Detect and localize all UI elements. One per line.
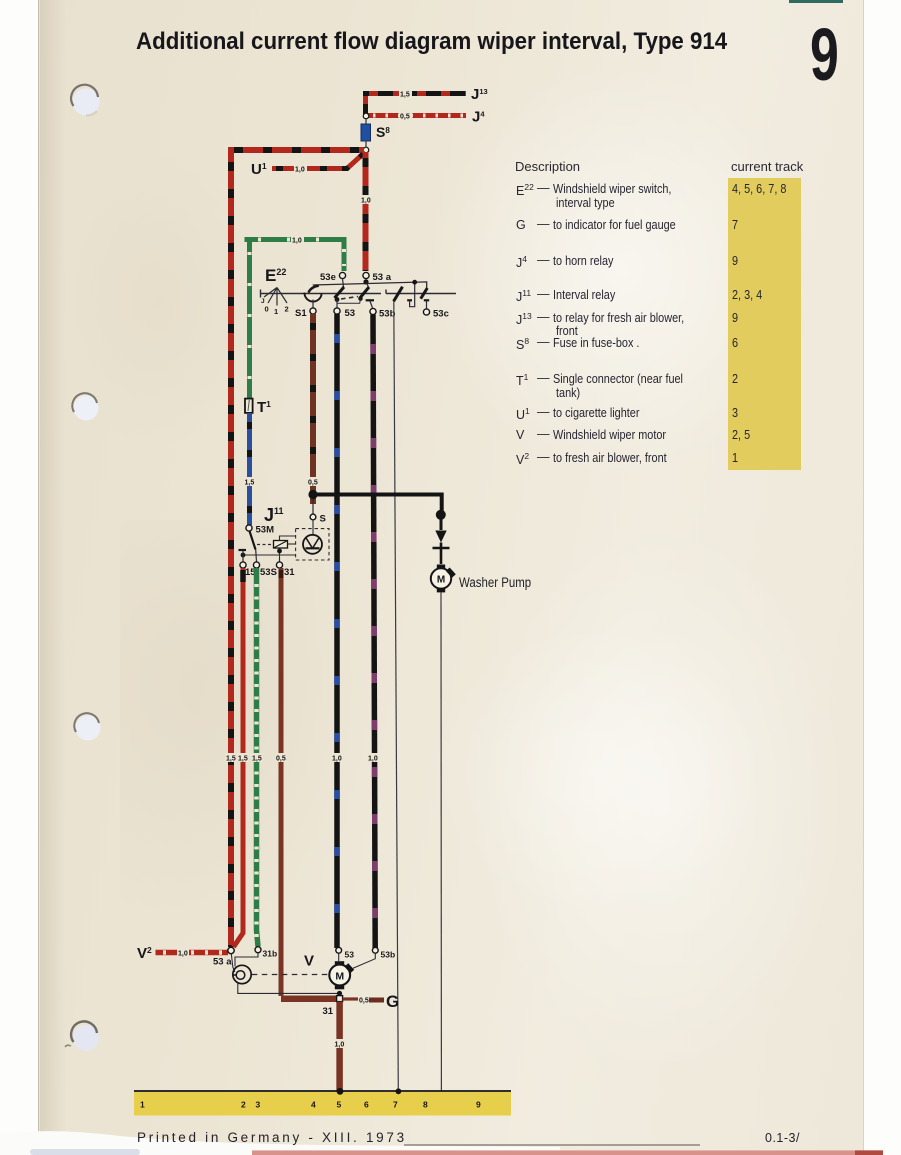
svg-text:1,5: 1,5 [245,480,255,487]
svg-text:53: 53 [345,950,355,960]
svg-text:1,5: 1,5 [252,756,262,763]
svg-text:1,0: 1,0 [178,951,188,958]
svg-text:1,0: 1,0 [292,238,302,245]
svg-text:53 a: 53 a [213,957,232,968]
svg-text:7: 7 [393,1100,398,1110]
svg-text:1: 1 [140,1100,145,1110]
svg-text:0: 0 [265,305,269,314]
svg-text:U1: U1 [251,161,267,178]
svg-text:53 a: 53 a [373,272,392,283]
svg-text:31b: 31b [263,949,278,959]
svg-text:53M: 53M [256,525,275,536]
svg-text:1,5: 1,5 [238,756,248,763]
svg-text:53b: 53b [379,309,396,320]
svg-text:5: 5 [337,1100,342,1110]
svg-text:0,5: 0,5 [276,756,286,763]
svg-text:S1: S1 [295,308,307,319]
svg-text:2: 2 [241,1100,246,1110]
svg-text:53: 53 [345,308,356,319]
svg-text:J13: J13 [471,86,488,103]
svg-text:1: 1 [274,307,278,316]
svg-text:31: 31 [323,1006,334,1017]
svg-text:V2: V2 [137,945,152,962]
svg-text:0,5: 0,5 [400,114,410,121]
svg-text:0,5: 0,5 [359,998,369,1005]
svg-text:0,5: 0,5 [308,480,318,487]
svg-text:1,0: 1,0 [368,756,378,763]
svg-text:J4: J4 [472,109,485,126]
svg-text:6: 6 [364,1100,369,1110]
svg-text:1,0: 1,0 [361,198,371,205]
svg-text:3: 3 [256,1100,261,1110]
svg-text:1,0: 1,0 [295,167,305,174]
svg-text:V: V [304,953,314,970]
svg-text:E22: E22 [265,266,286,285]
svg-text:M: M [437,575,445,586]
svg-text:Washer Pump: Washer Pump [459,575,531,590]
svg-text:1,0: 1,0 [332,756,342,763]
svg-text:S: S [320,514,326,525]
svg-text:S8: S8 [376,124,390,140]
svg-text:M: M [335,970,344,982]
svg-text:53b: 53b [381,950,396,960]
svg-text:1,0: 1,0 [335,1042,345,1049]
svg-text:1,5: 1,5 [400,92,410,99]
svg-text:2: 2 [285,305,289,314]
svg-text:31: 31 [284,567,295,578]
svg-text:T1: T1 [257,399,271,416]
svg-text:4: 4 [311,1100,316,1110]
svg-text:G: G [386,992,399,1011]
svg-text:9: 9 [476,1100,481,1110]
svg-text:53S: 53S [260,567,277,578]
svg-text:53e: 53e [320,272,336,283]
svg-text:J11: J11 [264,505,284,525]
svg-text:1,5: 1,5 [226,756,236,763]
svg-text:53c: 53c [433,309,449,320]
svg-text:8: 8 [423,1100,428,1110]
